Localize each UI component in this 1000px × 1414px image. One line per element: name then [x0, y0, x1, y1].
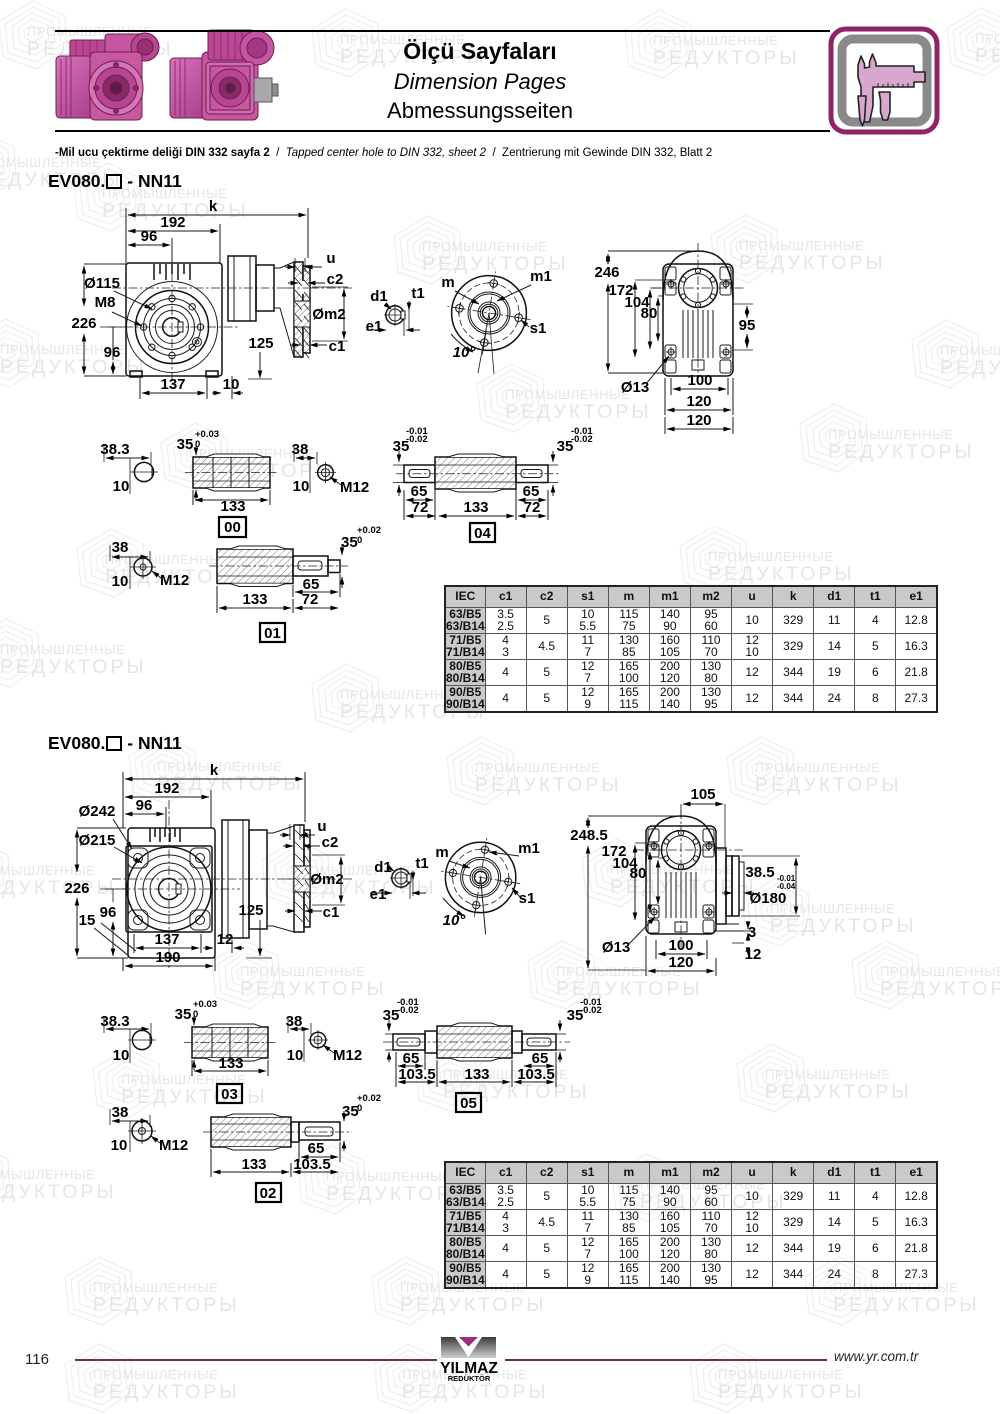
svg-text:Ø215: Ø215 [79, 832, 116, 849]
svg-text:72: 72 [524, 499, 541, 516]
svg-text:M12: M12 [340, 479, 369, 496]
svg-text:REDÜKTÖR: REDÜKTÖR [448, 1374, 491, 1383]
svg-text:0: 0 [357, 535, 362, 546]
svg-text:137: 137 [154, 931, 179, 948]
svg-text:133: 133 [218, 1055, 243, 1072]
svg-text:95: 95 [739, 317, 756, 334]
svg-text:M12: M12 [333, 1047, 362, 1064]
svg-text:246: 246 [594, 264, 619, 281]
svg-text:m1: m1 [530, 268, 552, 285]
svg-text:15: 15 [79, 912, 96, 929]
svg-text:248.5: 248.5 [570, 827, 608, 844]
svg-text:Ø242: Ø242 [79, 803, 116, 820]
svg-text:103.5: 103.5 [398, 1066, 436, 1083]
svg-text:133: 133 [463, 499, 488, 516]
svg-text:e1: e1 [370, 886, 387, 903]
svg-text:Ø180: Ø180 [750, 890, 787, 907]
svg-text:38: 38 [112, 1104, 129, 1121]
svg-text:c2: c2 [327, 271, 344, 288]
svg-text:133: 133 [464, 1066, 489, 1083]
svg-text:02: 02 [260, 1185, 277, 1202]
svg-text:226: 226 [71, 315, 96, 332]
svg-text:133: 133 [242, 591, 267, 608]
svg-text:03: 03 [221, 1086, 238, 1103]
svg-text:10: 10 [111, 1137, 128, 1154]
svg-text:10: 10 [113, 478, 130, 495]
svg-text:Ø13: Ø13 [602, 939, 630, 956]
svg-text:65: 65 [403, 1050, 420, 1067]
svg-text:-0.02: -0.02 [571, 434, 593, 445]
svg-text:35: 35 [341, 534, 358, 551]
svg-text:c2: c2 [322, 834, 339, 851]
svg-text:65: 65 [308, 1140, 325, 1157]
svg-text:-0.02: -0.02 [406, 434, 428, 445]
svg-text:96: 96 [104, 344, 121, 361]
svg-text:t1: t1 [415, 855, 428, 872]
svg-text:96: 96 [141, 228, 158, 245]
svg-text:t1: t1 [411, 285, 424, 302]
svg-text:m: m [435, 844, 448, 861]
svg-text:96: 96 [136, 797, 153, 814]
svg-text:103.5: 103.5 [293, 1156, 331, 1173]
svg-text:10: 10 [287, 1047, 304, 1064]
svg-text:u: u [326, 250, 335, 267]
svg-text:72: 72 [302, 591, 319, 608]
svg-text:Øm2: Øm2 [312, 306, 345, 323]
svg-text:105: 105 [690, 786, 715, 803]
svg-text:10: 10 [223, 376, 240, 393]
svg-text:M8: M8 [95, 294, 116, 311]
svg-text:u: u [317, 818, 326, 835]
svg-text:Ø13: Ø13 [621, 379, 649, 396]
svg-text:10°: 10° [443, 912, 467, 929]
svg-text:Ø115: Ø115 [84, 275, 120, 292]
svg-text:c1: c1 [323, 904, 340, 921]
svg-text:M12: M12 [159, 1137, 188, 1154]
svg-text:m: m [441, 274, 454, 291]
svg-text:k: k [209, 198, 218, 215]
svg-text:133: 133 [241, 1156, 266, 1173]
svg-text:35: 35 [177, 436, 194, 453]
svg-text:10: 10 [113, 1047, 130, 1064]
svg-text:00: 00 [224, 519, 241, 536]
svg-text:137: 137 [160, 376, 185, 393]
svg-text:M12: M12 [160, 572, 189, 589]
svg-text:100: 100 [668, 937, 693, 954]
svg-text:120: 120 [686, 393, 711, 410]
svg-text:12: 12 [217, 931, 234, 948]
svg-text:38.5: 38.5 [745, 864, 774, 881]
svg-text:65: 65 [532, 1050, 549, 1067]
svg-text:38.3: 38.3 [100, 441, 129, 458]
svg-text:72: 72 [412, 499, 429, 516]
svg-text:04: 04 [474, 525, 491, 542]
svg-text:100: 100 [687, 372, 712, 389]
svg-text:-0.02: -0.02 [580, 1005, 602, 1016]
svg-text:192: 192 [160, 214, 185, 231]
svg-text:01: 01 [264, 625, 281, 642]
svg-text:c1: c1 [329, 338, 346, 355]
svg-text:38.3: 38.3 [100, 1013, 129, 1030]
svg-text:k: k [210, 762, 219, 779]
svg-text:3: 3 [748, 924, 756, 941]
svg-text:35: 35 [175, 1006, 192, 1023]
svg-text:226: 226 [64, 880, 89, 897]
svg-text:133: 133 [220, 498, 245, 515]
svg-text:103.5: 103.5 [517, 1066, 555, 1083]
svg-text:96: 96 [100, 904, 117, 921]
svg-text:-0.02: -0.02 [397, 1005, 419, 1016]
svg-text:Øm2: Øm2 [310, 871, 343, 888]
svg-text:s1: s1 [530, 320, 547, 337]
svg-text:192: 192 [154, 780, 179, 797]
svg-text:38: 38 [112, 539, 129, 556]
svg-text:80: 80 [630, 865, 647, 882]
svg-text:05: 05 [460, 1095, 477, 1112]
svg-text:125: 125 [248, 335, 273, 352]
svg-text:65: 65 [411, 483, 428, 500]
svg-text:e1: e1 [366, 318, 383, 335]
svg-text:10: 10 [293, 478, 310, 495]
svg-text:125: 125 [238, 902, 263, 919]
svg-text:m1: m1 [518, 840, 540, 857]
svg-text:80: 80 [641, 305, 658, 322]
svg-text:65: 65 [523, 483, 540, 500]
svg-text:190: 190 [155, 949, 180, 966]
svg-text:s1: s1 [519, 890, 536, 907]
svg-text:12: 12 [745, 946, 762, 963]
svg-text:10: 10 [112, 573, 129, 590]
svg-text:d1: d1 [370, 288, 388, 305]
svg-text:120: 120 [686, 412, 711, 429]
svg-text:0: 0 [357, 1103, 362, 1114]
svg-text:120: 120 [668, 954, 693, 971]
